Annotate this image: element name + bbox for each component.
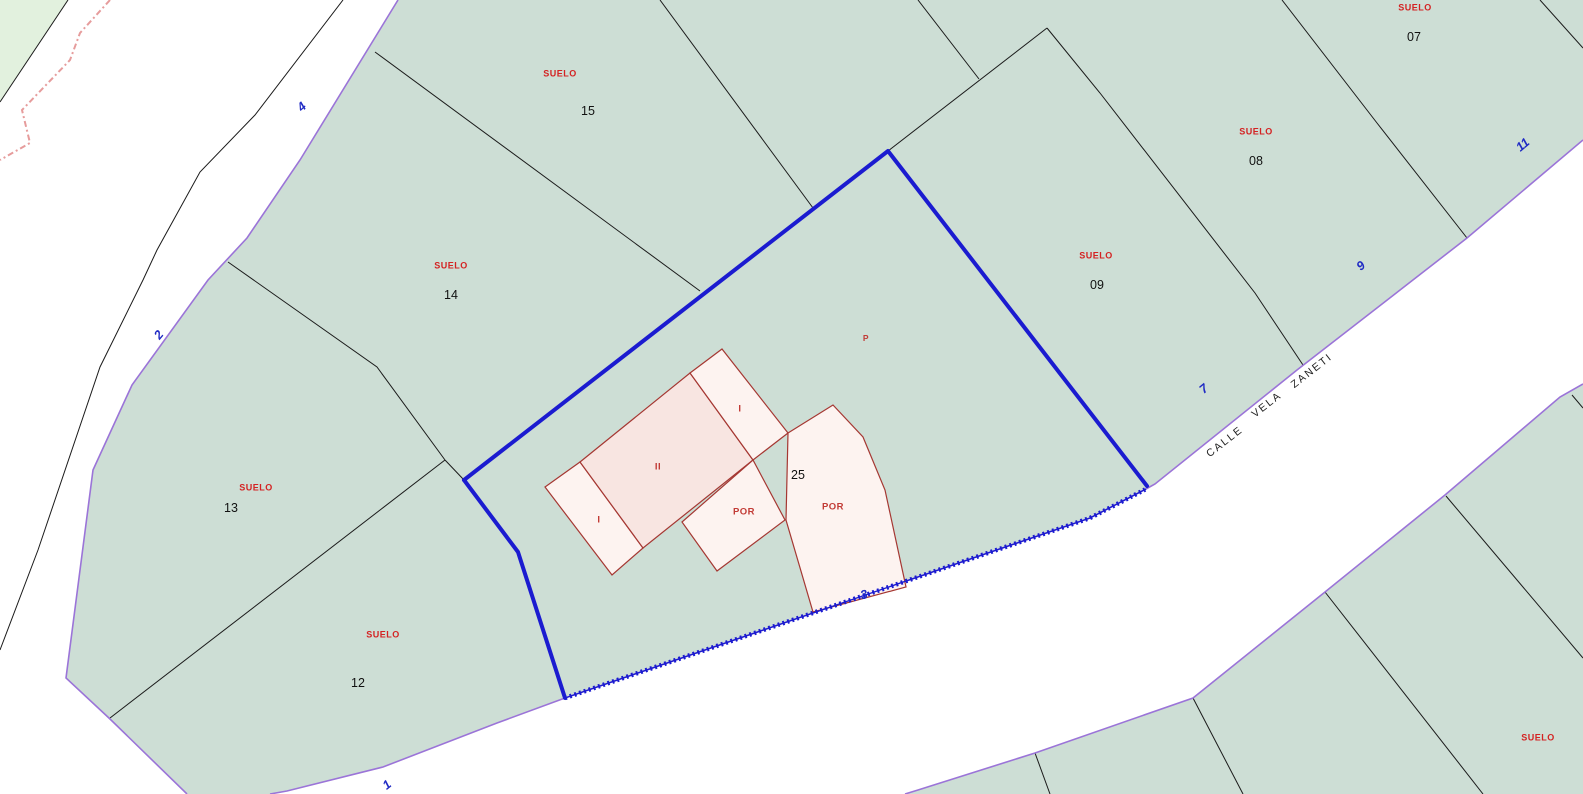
landuse-label-09: SUELO — [1079, 252, 1113, 261]
parcel-number-07: 07 — [1407, 31, 1421, 44]
landuse-label-12: SUELO — [366, 631, 400, 640]
building-floors-label: II — [655, 462, 661, 472]
parcel-number-13: 13 — [224, 502, 238, 515]
landuse-label-08: SUELO — [1239, 128, 1273, 137]
patio-label: P — [863, 334, 869, 343]
parcel-number-08: 08 — [1249, 155, 1263, 168]
porch-label: POR — [822, 502, 844, 512]
parcel-number-15: 15 — [581, 105, 595, 118]
building-floors-label: I — [597, 515, 600, 525]
parcel-number-14: 14 — [444, 289, 458, 302]
porch-label: POR — [733, 507, 755, 517]
parcel-number-09: 09 — [1090, 279, 1104, 292]
landuse-label-15: SUELO — [543, 70, 577, 79]
landuse-label-bottom-right: SUELO — [1521, 734, 1555, 743]
landuse-label-14: SUELO — [434, 262, 468, 271]
parcel-number-12: 12 — [351, 677, 365, 690]
building-floors-label: I — [738, 404, 741, 414]
landuse-label-13: SUELO — [239, 484, 273, 493]
address-number-25: 25 — [791, 469, 805, 482]
landuse-label-07: SUELO — [1398, 4, 1432, 13]
cadastral-map-viewport[interactable]: SUELO 15 SUELO 14 SUELO 13 SUELO 12 SUEL… — [0, 0, 1583, 794]
map-geometry — [0, 0, 1583, 794]
